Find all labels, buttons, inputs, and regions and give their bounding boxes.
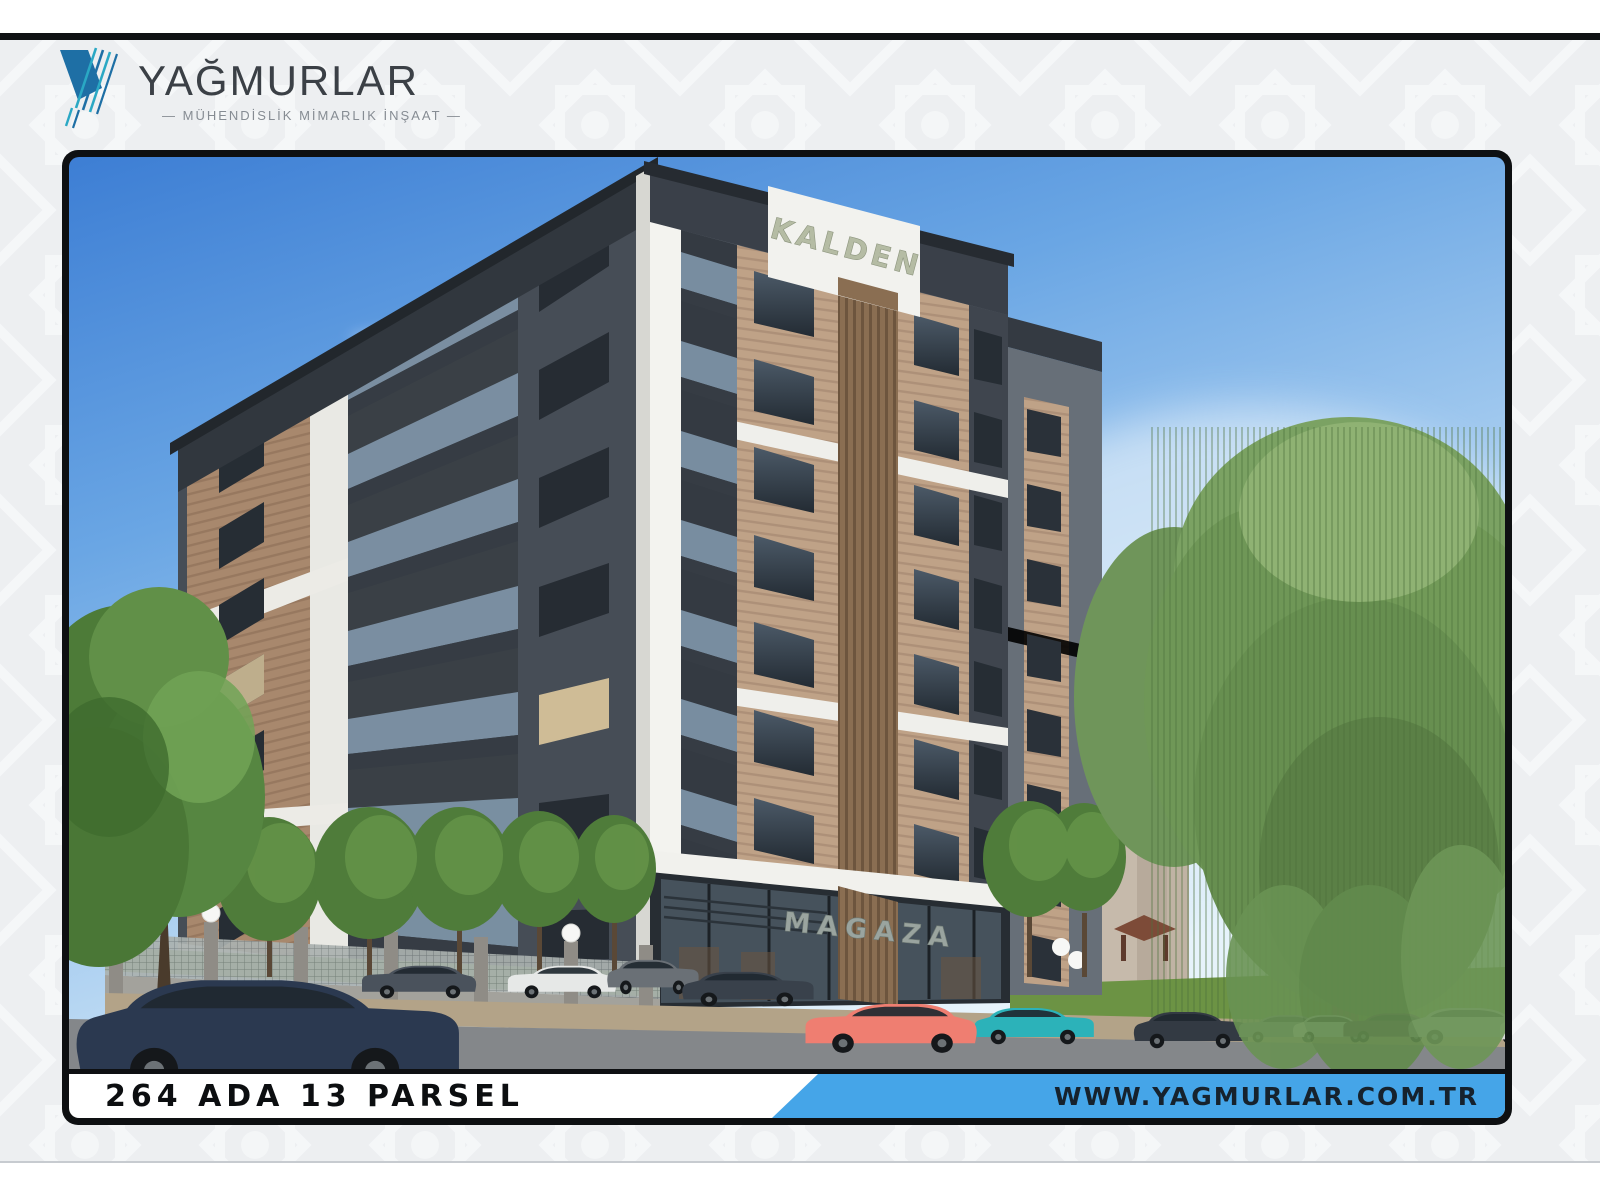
top-divider-rule xyxy=(0,33,1600,40)
bottom-divider-rule xyxy=(0,1161,1600,1163)
website-url: WWW.YAGMURLAR.COM.TR xyxy=(1054,1074,1479,1118)
logo-text-block: YAĞMURLAR — MÜHENDİSLİK MİMARLIK İNŞAAT … xyxy=(138,46,462,123)
architectural-render: KALDEN xyxy=(69,157,1505,1069)
footer-bar: 264 ADA 13 PARSEL WWW.YAGMURLAR.COM.TR xyxy=(69,1074,1505,1118)
parcel-label: 264 ADA 13 PARSEL xyxy=(105,1074,524,1118)
brand-tagline: — MÜHENDİSLİK MİMARLIK İNŞAAT — xyxy=(162,108,462,123)
render-frame: KALDEN xyxy=(62,150,1512,1125)
render-frame-inner: KALDEN xyxy=(69,157,1505,1118)
right-facade-balconies xyxy=(681,230,737,866)
logo-y-icon xyxy=(58,46,128,132)
brand-logo: YAĞMURLAR — MÜHENDİSLİK MİMARLIK İNŞAAT … xyxy=(58,46,462,132)
poster-page: YAĞMURLAR — MÜHENDİSLİK MİMARLIK İNŞAAT … xyxy=(0,0,1600,1200)
brand-name: YAĞMURLAR xyxy=(138,60,462,102)
